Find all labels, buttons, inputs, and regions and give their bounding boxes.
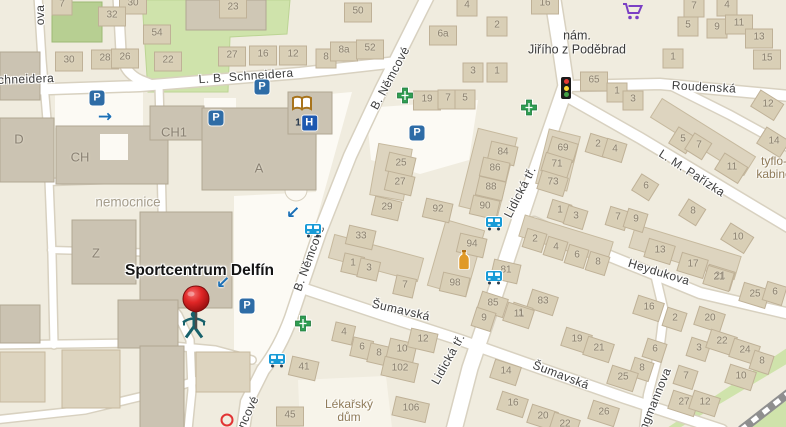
- street-label: ncové: [234, 394, 261, 427]
- house-number: 69: [557, 143, 568, 154]
- house-number: 92: [432, 204, 443, 215]
- house-number: 4: [612, 144, 618, 155]
- house-number: 25: [749, 289, 760, 300]
- house-number: 12: [287, 49, 298, 60]
- house-number: 25: [617, 372, 628, 383]
- house-number: 26: [598, 407, 609, 418]
- house-number: 1: [494, 66, 500, 77]
- house-number: 33: [355, 231, 366, 242]
- building-label: CH: [71, 150, 90, 165]
- area-label: Lékařskýdům: [325, 398, 373, 424]
- house-number: 1: [557, 205, 563, 216]
- house-number: 16: [507, 398, 518, 409]
- house-number: 88: [485, 182, 496, 193]
- house-number: 3: [696, 343, 702, 354]
- red-circle-icon[interactable]: [221, 414, 234, 427]
- street-label: ngmannova: [636, 366, 674, 427]
- house-number: 6: [359, 342, 365, 353]
- street-label: ova: [33, 5, 47, 26]
- parking-icon[interactable]: P: [90, 91, 105, 106]
- house-number: 106: [403, 403, 420, 414]
- house-number: 3: [470, 66, 476, 77]
- street-label: Roudenská: [672, 78, 737, 95]
- house-number: 27: [394, 177, 405, 188]
- house-number: 4: [553, 242, 559, 253]
- house-number: 73: [547, 177, 558, 188]
- house-number: 7: [59, 0, 65, 10]
- house-number: 25: [395, 158, 406, 169]
- building-label: D: [14, 132, 23, 147]
- area-label: tyflo-kabine: [756, 155, 786, 181]
- house-number: 102: [392, 363, 409, 374]
- house-number: 19: [421, 94, 432, 105]
- house-number: 22: [559, 419, 570, 427]
- house-number: 11: [734, 18, 744, 29]
- house-number: 1: [350, 258, 356, 269]
- house-number: 7: [683, 371, 689, 382]
- street-label: Lidická tř.: [501, 164, 539, 220]
- house-number: 6: [643, 181, 649, 192]
- house-number: 13: [654, 245, 665, 256]
- house-number: 7: [696, 140, 702, 151]
- shopping-cart-icon[interactable]: [622, 2, 644, 26]
- house-number: 10: [732, 232, 743, 243]
- map-viewport[interactable]: Sportcentrum Delfín 73032543028262223271…: [0, 0, 786, 427]
- area-label: nám.Jiřího z Poděbrad: [528, 29, 626, 57]
- poi-label-sportcentrum-delfin[interactable]: Sportcentrum Delfín: [125, 262, 274, 280]
- house-number: 7: [402, 280, 408, 291]
- house-number: 19: [571, 334, 582, 345]
- house-number: 2: [595, 139, 601, 150]
- house-number: 2: [532, 234, 538, 245]
- building-label: CH1: [161, 125, 187, 140]
- house-number: 52: [364, 43, 375, 54]
- pub-bottle-icon[interactable]: [458, 250, 470, 275]
- house-number: 21: [713, 272, 724, 283]
- house-number: 22: [162, 55, 173, 66]
- house-number: 13: [753, 32, 764, 43]
- house-number: 85: [487, 298, 498, 309]
- pharmacy-icon[interactable]: [295, 315, 312, 337]
- house-number: 11: [727, 162, 737, 173]
- parking-icon[interactable]: P: [255, 80, 270, 95]
- house-number: 28: [99, 53, 110, 64]
- parking-icon[interactable]: P: [410, 126, 425, 141]
- street-label: L. B. Schneidera: [198, 66, 294, 87]
- map-pin-icon[interactable]: [181, 285, 211, 336]
- bus-stop-icon[interactable]: [304, 223, 323, 244]
- arrow-right-icon[interactable]: →: [98, 107, 112, 127]
- parking-icon[interactable]: P: [209, 111, 224, 126]
- house-number: 5: [680, 134, 686, 145]
- house-number: 20: [537, 411, 548, 422]
- house-number: 8: [690, 206, 696, 217]
- house-number: 14: [768, 136, 779, 147]
- house-number: 2: [494, 20, 500, 31]
- area-label: nemocnice: [95, 196, 160, 211]
- house-number: 20: [704, 313, 715, 324]
- house-number: 6: [652, 344, 658, 355]
- street-label: chneidera: [0, 71, 54, 87]
- house-number: 3: [630, 94, 636, 105]
- house-number: 5: [462, 93, 468, 104]
- house-number: 14: [500, 366, 511, 377]
- house-number: 8: [376, 348, 382, 359]
- house-number: 94: [466, 239, 477, 250]
- library-icon[interactable]: [291, 95, 313, 117]
- house-number: 1: [614, 86, 620, 97]
- house-number: 27: [678, 397, 689, 408]
- house-number: 8a: [338, 45, 349, 56]
- house-number: 26: [119, 52, 130, 63]
- house-number: 90: [479, 201, 490, 212]
- house-number: 8: [759, 356, 765, 367]
- house-number: 9: [633, 214, 639, 225]
- house-number: 54: [151, 28, 162, 39]
- house-number: 8: [639, 363, 645, 374]
- house-number: 6: [574, 250, 580, 261]
- traffic-light-icon[interactable]: [561, 77, 571, 99]
- bus-stop-icon[interactable]: [268, 353, 287, 374]
- house-number: 84: [497, 147, 508, 158]
- bus-stop-icon[interactable]: [485, 216, 504, 237]
- house-number: 7: [691, 1, 697, 12]
- building-label: Z: [92, 246, 100, 261]
- pharmacy-icon[interactable]: [521, 99, 538, 121]
- building-label: A: [255, 161, 264, 176]
- house-number: 6: [772, 287, 778, 298]
- house-number: 98: [449, 278, 460, 289]
- house-number: 7: [615, 212, 621, 223]
- house-number: 17: [687, 259, 698, 270]
- arrow-down-left-icon[interactable]: ↙: [286, 203, 300, 223]
- house-number: 23: [227, 2, 238, 13]
- house-number: 3: [366, 263, 372, 274]
- label-layer: Sportcentrum Delfín 73032543028262223271…: [0, 0, 786, 427]
- house-number: 21: [593, 343, 604, 354]
- house-number: 12: [699, 397, 710, 408]
- house-number: 86: [489, 163, 500, 174]
- house-number: 50: [352, 6, 363, 17]
- house-number: 2: [672, 313, 678, 324]
- pharmacy-icon[interactable]: [397, 87, 414, 109]
- house-number: 32: [106, 10, 117, 21]
- house-number: 4: [464, 0, 470, 11]
- street-label: Heydukova: [627, 256, 692, 288]
- house-number: 45: [284, 410, 295, 421]
- house-number: 15: [761, 53, 772, 64]
- house-number: 8: [595, 257, 601, 268]
- street-label: L. M. Pařízka: [656, 146, 727, 199]
- street-label: Šumavská: [531, 358, 591, 392]
- house-number: 10: [396, 344, 407, 355]
- house-number: 7: [445, 93, 451, 104]
- house-number: 12: [762, 99, 773, 110]
- bus-stop-icon[interactable]: [485, 270, 504, 291]
- house-number: 30: [63, 55, 74, 66]
- house-number: 11: [514, 309, 524, 320]
- house-number: 24: [739, 345, 750, 356]
- hospital-icon[interactable]: 1H: [295, 116, 317, 131]
- house-number: 9: [714, 22, 720, 33]
- house-number: 1: [670, 52, 676, 63]
- street-label: Šumavská: [371, 297, 432, 324]
- house-number: 6a: [437, 29, 448, 40]
- house-number: 71: [551, 159, 562, 170]
- house-number: 29: [381, 202, 392, 213]
- house-number: 3: [573, 211, 579, 222]
- house-number: 16: [539, 0, 550, 9]
- house-number: 5: [685, 20, 691, 31]
- house-number: 9: [481, 313, 487, 324]
- house-number: 8: [323, 52, 329, 63]
- street-label: Lidická tř.: [428, 331, 467, 387]
- house-number: 4: [724, 0, 730, 11]
- house-number: 83: [537, 296, 548, 307]
- house-number: 10: [735, 371, 746, 382]
- house-number: 22: [716, 336, 727, 347]
- house-number: 65: [588, 75, 599, 86]
- house-number: 30: [127, 0, 138, 9]
- house-number: 16: [643, 302, 654, 313]
- house-number: 4: [341, 327, 347, 338]
- parking-icon[interactable]: P: [240, 299, 255, 314]
- house-number: 27: [226, 50, 237, 61]
- house-number: 16: [257, 49, 268, 60]
- house-number: 12: [417, 334, 428, 345]
- house-number: 41: [298, 362, 309, 373]
